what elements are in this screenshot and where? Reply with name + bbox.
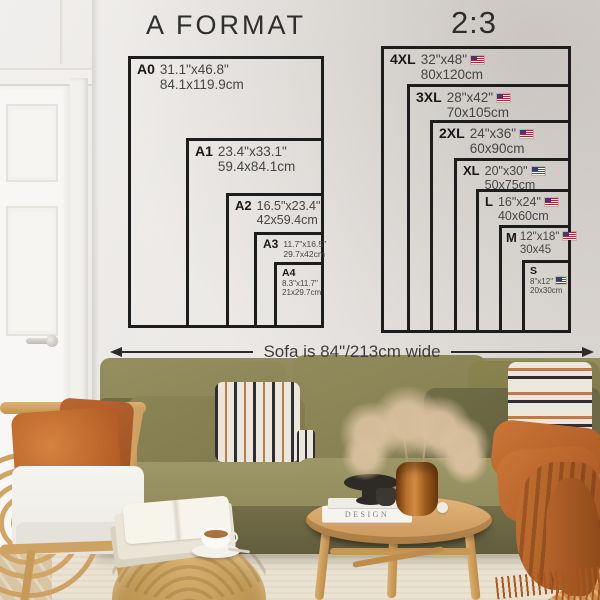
dimension-line (122, 351, 253, 353)
decor-ball (437, 502, 448, 513)
size-inches: 16.5"x23.4" (257, 199, 321, 213)
dimension-line (451, 351, 582, 353)
size-code: A0 (137, 62, 155, 92)
size-cm: 30x45 (520, 244, 551, 256)
us-flag-icon (563, 232, 576, 240)
size-cm: 29.7x42cm (283, 249, 325, 259)
size-cm: 20x30cm (530, 286, 566, 295)
size-cm: 59.4x84.1cm (218, 159, 295, 174)
size-inches: 8"x12" (530, 277, 553, 286)
door-handle-knob (46, 335, 58, 347)
size-code: XL (463, 164, 480, 192)
size-cm: 70x105cm (447, 105, 509, 120)
size-code: A4 (282, 267, 319, 279)
sofa-width-label: Sofa is 84"/213cm wide (263, 342, 440, 362)
size-code: A1 (195, 144, 213, 174)
size-inches: 16"x24" (498, 195, 541, 209)
us-flag-icon (545, 198, 558, 206)
size-cm: 42x59.4cm (257, 213, 318, 227)
size-code: A2 (235, 199, 252, 227)
us-flag-icon (497, 94, 510, 102)
a-format-chart: A0 31.1"x46.8" 84.1x119.9cm A1 23.4"x33.… (128, 56, 324, 328)
wall-panel-line (60, 0, 64, 64)
book-spine-text: DESIGN (345, 510, 389, 519)
size-cm: 60x90cm (470, 141, 525, 156)
size-inches: 23.4"x33.1" (218, 144, 287, 159)
us-flag-icon (556, 277, 566, 284)
us-flag-icon (520, 130, 533, 138)
size-inches: 11.7"x16.5" (283, 239, 326, 249)
dried-flowers (444, 440, 488, 484)
size-inches: 8.3"x11.7" (282, 279, 319, 288)
size-cm: 21x29.7cm (282, 288, 319, 297)
door-panel (6, 206, 58, 336)
size-inches: 20"x30" (485, 164, 528, 178)
two-three-chart: 4XL 32"x48" 80x120cm 3XL 28"x42" 70x105c… (381, 46, 571, 333)
size-code: L (485, 195, 493, 223)
size-cm: 40x60cm (498, 209, 549, 223)
us-flag-icon (532, 167, 545, 175)
size-inches: 24"x36" (470, 126, 516, 141)
size-code: A3 (263, 238, 278, 259)
dried-flowers (342, 434, 388, 480)
size-inches: 12"x18" (520, 231, 560, 243)
door-panel (6, 104, 58, 182)
throw-fringe (555, 580, 600, 600)
left-chart-title: A FORMAT (146, 10, 306, 41)
size-cm: 80x120cm (421, 67, 483, 82)
size-box-a4: A4 8.3"x11.7" 21x29.7cm (274, 262, 324, 328)
size-code: 4XL (390, 52, 416, 82)
size-inches: 28"x42" (447, 90, 493, 105)
arrow-left-icon (110, 347, 122, 357)
cup-handle (229, 532, 238, 543)
size-inches: 31.1"x46.8" (160, 62, 229, 77)
arrow-right-icon (582, 347, 594, 357)
size-code: 2XL (439, 126, 465, 156)
black-cup (376, 488, 396, 506)
us-flag-icon (471, 56, 484, 64)
size-code: S (530, 265, 566, 277)
size-cm: 84.1x119.9cm (160, 77, 244, 92)
striped-pillow-left (215, 382, 300, 462)
amber-glass-vase (396, 462, 438, 516)
poster-size-guide-photo: DESIGN A FORMAT 2:3 A0 31.1"x46.8" 84.1x… (0, 0, 600, 600)
size-code: M (506, 231, 517, 257)
right-chart-title: 2:3 (451, 5, 497, 41)
sofa-width-dimension: Sofa is 84"/213cm wide (110, 342, 594, 362)
size-box-s: S 8"x12" 20x30cm (522, 260, 571, 333)
size-inches: 32"x48" (421, 52, 467, 67)
size-code: 3XL (416, 90, 442, 120)
coffee-surface (204, 530, 228, 538)
